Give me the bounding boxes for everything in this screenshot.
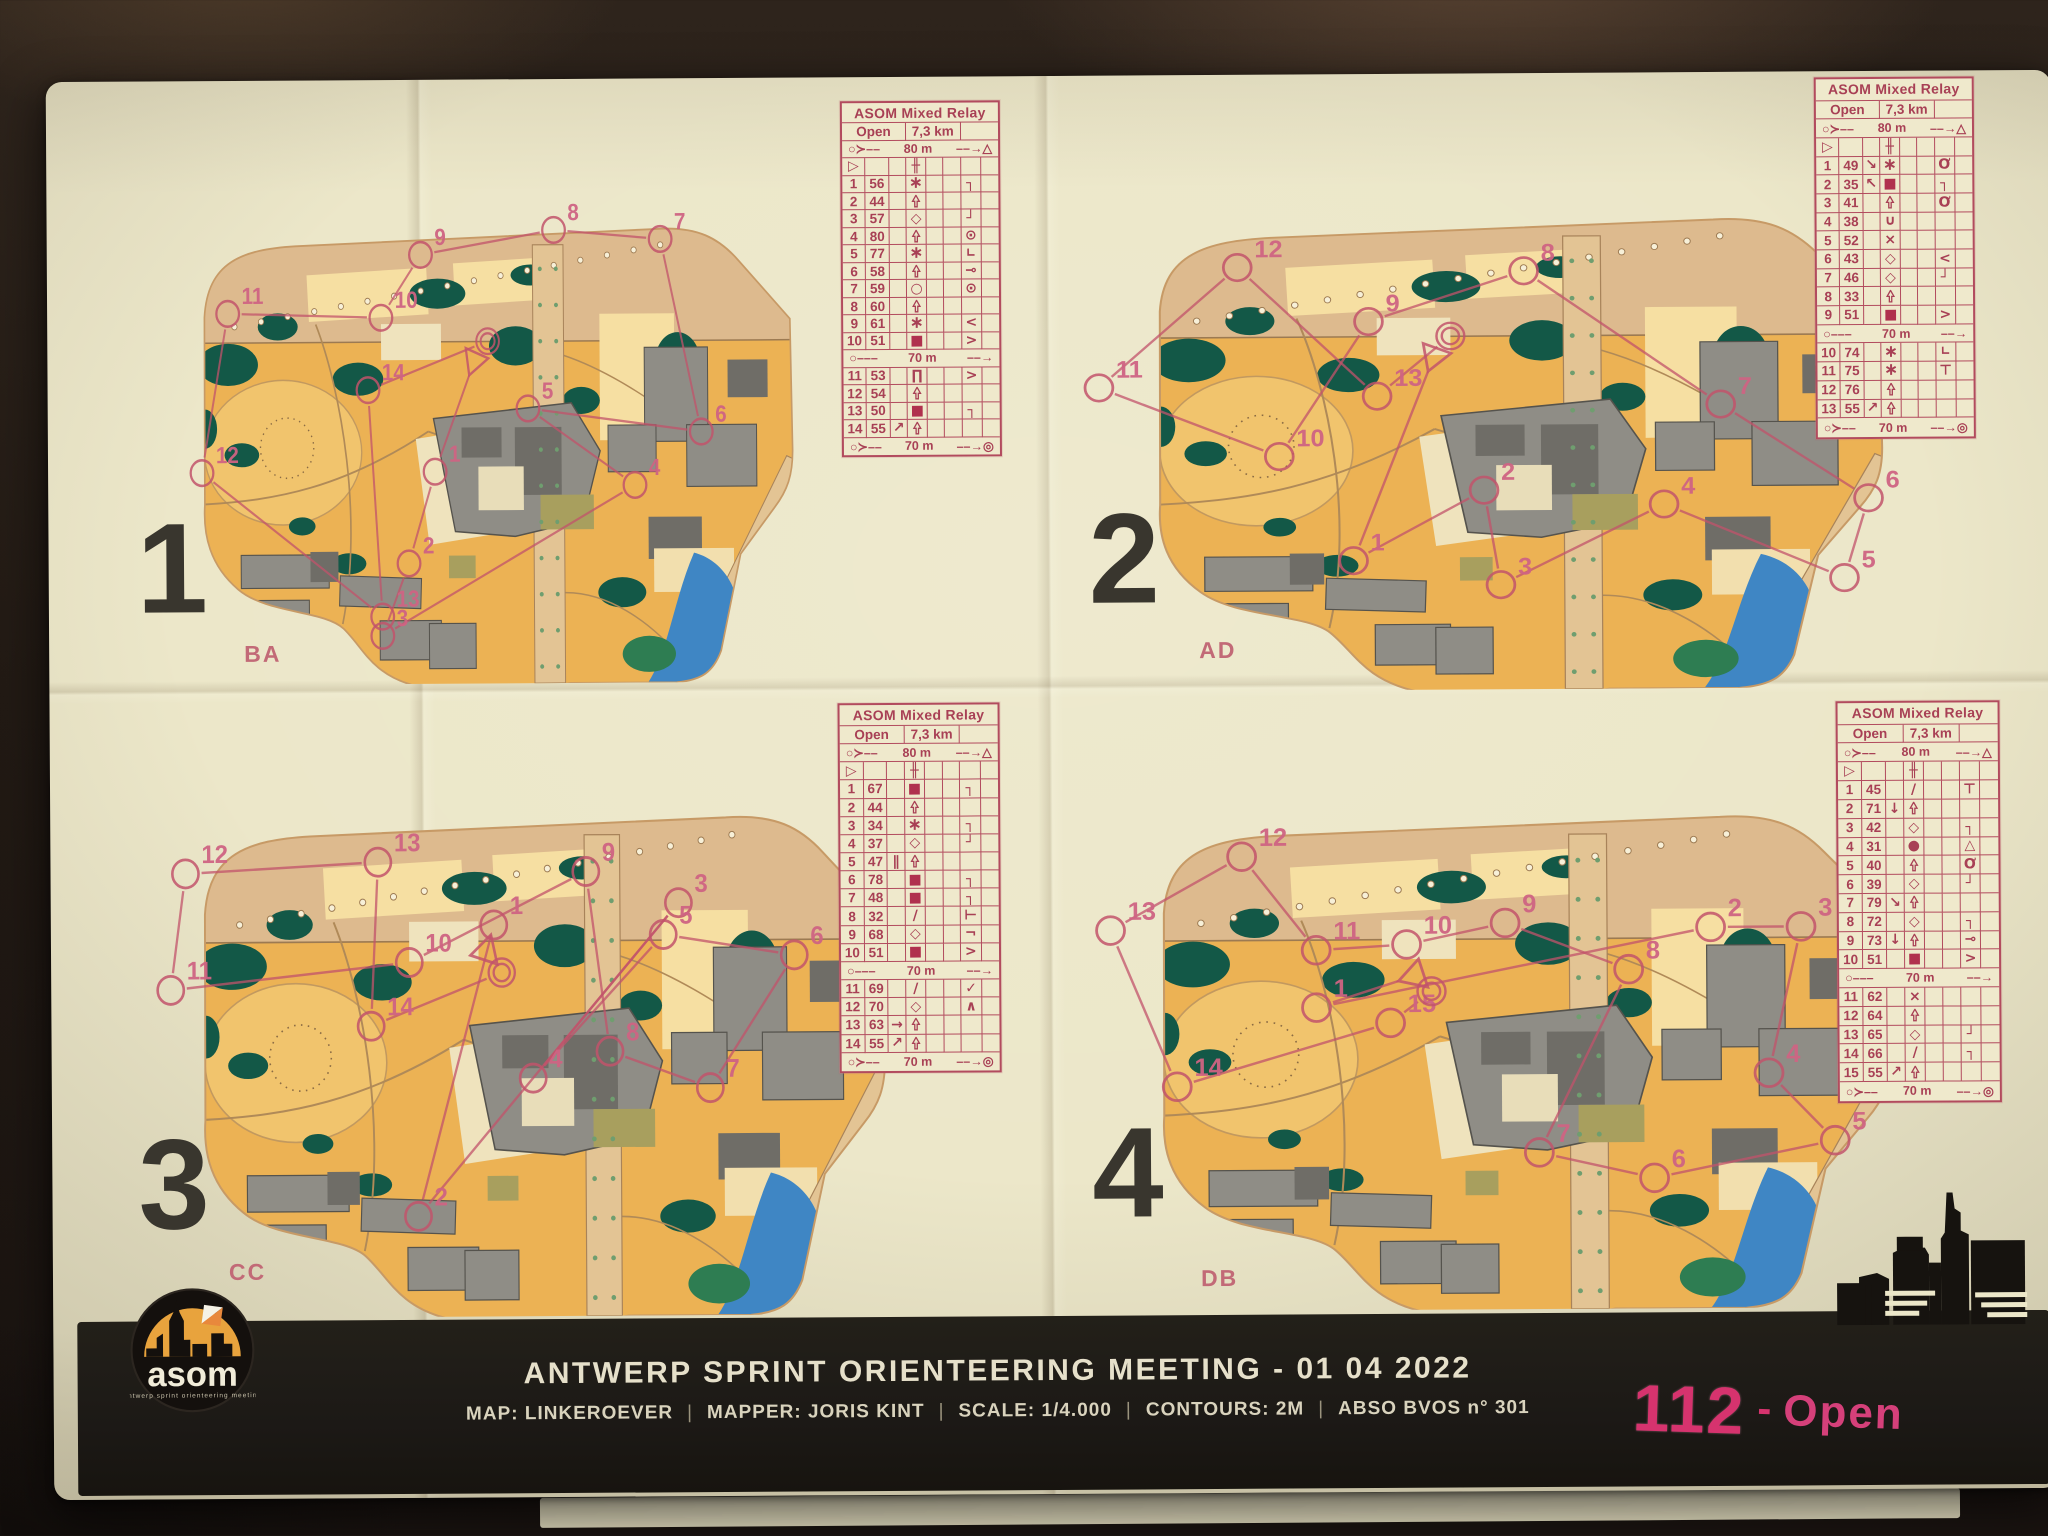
ct-cell <box>1981 912 1999 931</box>
ct-cell <box>1955 156 1972 175</box>
control-row: 973↓⊸ <box>1839 931 1999 951</box>
ct-edge-text: ––→◎ <box>1930 419 1967 434</box>
ct-cell: ⊙ <box>961 280 981 298</box>
symbol-star-icon: ∗ <box>910 315 924 332</box>
control-number: 7 <box>1556 1120 1570 1148</box>
event-meta: MAP: LINKEROEVER|MAPPER: JORIS KINT|SCAL… <box>408 1397 1588 1426</box>
ct-cell <box>907 228 927 246</box>
ct-cell <box>1864 343 1881 362</box>
ct-cell <box>944 1034 961 1052</box>
meta-separator: | <box>1304 1398 1338 1419</box>
ct-edge-text: ○––– <box>849 351 877 365</box>
ct-cell: 44 <box>864 799 888 817</box>
ct-cell <box>1881 287 1901 306</box>
ct-cell: 79 <box>1863 894 1887 913</box>
ct-cell: 1 <box>842 176 865 194</box>
control-row: 244 <box>840 798 998 817</box>
ct-cell: ○≻––70 m––→◎ <box>1840 1081 2000 1101</box>
ct-cell <box>1955 212 1972 231</box>
ct-cell <box>1956 268 1973 287</box>
ct-cell <box>1905 1006 1926 1025</box>
ct-cell: Ơ <box>1960 856 1981 875</box>
ct-cell <box>927 280 944 298</box>
ct-cell <box>927 1034 944 1052</box>
ct-edge-text: ○≻–– <box>846 745 878 760</box>
ct-cell: ASOM Mixed Relay <box>1816 78 1972 100</box>
ct-cell <box>887 762 904 780</box>
ct-cell <box>1956 343 1973 362</box>
ct-cell: 3 <box>1838 819 1862 838</box>
ct-cell: ↗ <box>889 1034 906 1052</box>
ct-cell: 68 <box>865 926 889 944</box>
control-row: 833 <box>1817 287 1973 307</box>
ct-cell <box>1943 950 1961 969</box>
ct-cell <box>1926 1063 1944 1082</box>
control-number: 1 <box>1334 975 1348 1003</box>
ct-cell <box>927 315 944 333</box>
ct-exchange-row: ○–––70 m––→ <box>841 961 999 980</box>
symbol-gate-icon: ╫ <box>912 159 921 173</box>
ct-cell <box>927 210 944 228</box>
ct-finish-row: ○≻––70 m––→◎ <box>842 1052 1000 1071</box>
ct-cell <box>962 419 982 437</box>
ct-cell <box>1926 1006 1944 1025</box>
control-row: 357◇┘ <box>842 210 998 228</box>
ct-cell <box>1981 893 1999 912</box>
ct-cell: 37 <box>864 835 888 853</box>
ct-cell: ∏ <box>907 367 927 385</box>
ct-cell: ∗ <box>1880 156 1900 175</box>
ct-start-distance-row: ○≻––80 m––→△ <box>1816 119 1972 139</box>
ct-cell: ╫ <box>1903 762 1924 781</box>
ct-cell: 44 <box>866 193 889 211</box>
ct-cell: 77 <box>866 245 889 263</box>
symbol-circle-tick-icon: ⊙ <box>965 281 977 295</box>
ct-cell: ∥ <box>888 853 905 871</box>
ct-cell <box>944 943 961 961</box>
ct-cell <box>889 245 906 263</box>
ct-cell: 13 <box>1839 1026 1863 1045</box>
ct-cell: ┐ <box>1960 818 1981 837</box>
ct-cell <box>1942 799 1960 818</box>
ct-cell: 1 <box>1838 781 1862 800</box>
symbol-corner-ne-icon: ┐ <box>966 781 975 795</box>
ct-cell: ┐ <box>960 816 981 834</box>
ct-cell: 55 <box>867 420 890 438</box>
ct-cell: 6 <box>1839 875 1863 894</box>
ct-cell <box>927 1016 944 1034</box>
ct-cell <box>1887 913 1905 932</box>
ct-cell <box>943 889 960 907</box>
ct-cell <box>926 175 943 193</box>
ct-start-row: ▷╫ <box>842 157 998 175</box>
ct-cell <box>944 245 961 263</box>
ct-cell <box>926 925 943 943</box>
control-row: 1074∗∟ <box>1817 343 1973 363</box>
ct-cell: < <box>1935 249 1955 268</box>
ct-cell <box>1919 362 1936 381</box>
ct-mid-text: 80 m <box>1901 745 1930 759</box>
ct-cell: 10 <box>841 944 865 962</box>
ct-cell <box>1901 306 1918 325</box>
meta-separator: | <box>1112 1399 1146 1420</box>
symbol-gate-icon: ╫ <box>910 764 919 778</box>
ct-cell <box>926 834 943 852</box>
ct-cell <box>1981 856 1999 875</box>
control-row: 1455↗ <box>842 1034 1000 1053</box>
symbol-junction-icon: ✓ <box>965 981 977 995</box>
control-number: 9 <box>1385 291 1399 317</box>
ct-cell <box>944 175 961 193</box>
control-row: 1466/┐ <box>1840 1044 2000 1064</box>
ct-cell: ○≻––80 m––→△ <box>842 140 998 158</box>
ct-cell: ◇ <box>906 998 927 1016</box>
control-row: 746◇┘ <box>1817 268 1973 288</box>
control-number: 8 <box>567 199 579 225</box>
control-number: 14 <box>1194 1054 1223 1082</box>
ct-cell <box>1901 212 1918 231</box>
control-row: 1455↗ <box>844 419 1000 437</box>
ct-cell <box>1924 781 1942 800</box>
ct-cell <box>945 385 962 403</box>
ct-cell <box>1901 287 1918 306</box>
control-number: 5 <box>1852 1107 1866 1135</box>
ct-cell <box>1900 156 1917 175</box>
control-number: 13 <box>1394 365 1422 391</box>
ct-cell <box>908 420 928 438</box>
ct-cell: ┘ <box>1960 874 1981 893</box>
control-row: 149↘∗Ơ <box>1816 156 1972 176</box>
ct-start-distance-row: ○≻––80 m––→△ <box>1838 743 1998 763</box>
ct-cell <box>889 980 906 998</box>
control-number: 8 <box>1541 240 1555 266</box>
ct-cell <box>926 889 943 907</box>
ct-cell: ┘ <box>1935 268 1955 287</box>
symbol-slash-icon: / <box>913 981 918 995</box>
bib-and-class: 112-Open <box>1632 1369 1905 1454</box>
ct-cell: ○–––70 m––→ <box>1839 968 1999 988</box>
symbol-square-icon: ■ <box>908 873 921 887</box>
ct-cell: 55 <box>1841 400 1865 419</box>
symbol-corner-ne-icon: ┐ <box>966 890 975 904</box>
ct-cell: → <box>889 1016 906 1034</box>
ct-cell <box>890 315 907 333</box>
symbol-tree-icon <box>912 387 923 400</box>
ct-cell: ↗ <box>1864 399 1881 418</box>
control-number: 14 <box>382 359 406 386</box>
ct-cell: 8 <box>1817 288 1841 307</box>
ct-cell <box>1981 874 1999 893</box>
ct-cell: 49 <box>1840 157 1864 176</box>
ct-cell <box>1955 193 1972 212</box>
ct-cell <box>1902 362 1919 381</box>
symbol-tree-icon <box>1909 934 1920 947</box>
symbol-arrow-nw-icon: ↖ <box>1865 177 1877 191</box>
control-row: 334∗┐ <box>840 816 998 835</box>
ct-cell <box>1956 287 1973 306</box>
ct-edge-text: ––→△ <box>956 744 992 759</box>
ct-cell: 11 <box>843 368 866 386</box>
ct-cell <box>866 158 889 176</box>
symbol-corner-ne-icon: ┐ <box>966 818 975 832</box>
symbol-diamond-icon: ◇ <box>1885 252 1896 266</box>
ct-cell <box>1881 381 1901 400</box>
ct-start-row: ▷╫ <box>840 762 998 781</box>
control-row: 951■> <box>1817 305 1973 325</box>
ct-cell <box>1960 799 1981 818</box>
ct-cell: ⊸ <box>961 262 981 280</box>
ct-cell <box>928 402 945 420</box>
ct-cell: ◇ <box>1904 912 1925 931</box>
symbol-corner-se-icon: ┘ <box>966 211 975 225</box>
ct-cell <box>1904 856 1925 875</box>
ct-cell: 11 <box>1817 362 1841 381</box>
ct-cell <box>889 193 906 211</box>
antwerp-skyline-icon <box>1829 1192 2040 1325</box>
ct-cell: 38 <box>1840 213 1864 232</box>
control-number: 2 <box>1501 459 1515 485</box>
ct-cell <box>1956 249 1973 268</box>
ct-cell: ○–––70 m––→ <box>841 961 999 980</box>
symbol-arrow-se-icon: ↘ <box>1889 896 1901 910</box>
ct-cell <box>928 420 945 438</box>
symbol-bend-e-icon: > <box>965 945 977 959</box>
ct-cell: 13 <box>844 403 867 421</box>
ct-cell <box>981 245 998 263</box>
control-row: 658⊸ <box>843 262 999 280</box>
control-number: 10 <box>425 930 452 958</box>
ct-cell <box>906 1016 927 1034</box>
control-number: 13 <box>1128 898 1157 926</box>
symbol-diamond-icon: ◇ <box>909 836 920 850</box>
asom-club-logo: asom antwerp sprint orienteering meeting <box>129 1287 256 1414</box>
ct-start-distance-row: ○≻––80 m––→△ <box>840 743 998 762</box>
ct-cell: / <box>1905 1044 1926 1063</box>
ct-cell: 6 <box>841 871 865 889</box>
ct-cell <box>1935 231 1955 250</box>
ct-cell: 40 <box>1862 856 1886 875</box>
ct-edge-text: ––→◎ <box>957 438 994 453</box>
ct-cell: 51 <box>867 333 890 351</box>
control-number: 4 <box>1786 1040 1800 1068</box>
ct-cell <box>1942 762 1960 781</box>
control-number: 4 <box>1681 473 1696 499</box>
ct-edge-text: ––→ <box>1941 326 1967 340</box>
ct-cell <box>1864 381 1881 400</box>
ct-edge-text: ––→◎ <box>956 1054 993 1069</box>
ct-cell <box>1956 380 1973 399</box>
ct-cell <box>983 419 1000 437</box>
ct-cell: ┐ <box>960 780 981 798</box>
ct-cell <box>1917 137 1934 156</box>
ct-cell <box>1942 837 1960 856</box>
control-number: 11 <box>187 958 213 986</box>
symbol-corner-ne-icon: ┐ <box>1965 820 1974 834</box>
symbol-arrow-e-icon: → <box>891 1018 903 1032</box>
ct-cell <box>926 158 943 176</box>
ct-cell <box>1961 987 1982 1006</box>
ct-cell: 1 <box>1816 157 1840 176</box>
ct-cell <box>981 227 998 245</box>
control-row: 1264 <box>1839 1006 1999 1026</box>
ct-cell <box>961 1016 982 1034</box>
ct-cell: 41 <box>1840 194 1864 213</box>
ct-cell <box>961 192 981 210</box>
ct-cell: 10 <box>843 333 866 351</box>
ct-cell <box>888 817 905 835</box>
ct-cell: ■ <box>906 944 927 962</box>
symbol-cross-icon: × <box>1884 233 1896 247</box>
ct-cell: ○≻––80 m––→△ <box>840 743 998 762</box>
leg-number-3: 3 <box>138 1121 206 1249</box>
symbol-square-icon: ■ <box>908 782 921 796</box>
ct-cell <box>928 367 945 385</box>
control-row: 678■┐ <box>841 870 999 889</box>
ct-cell <box>1918 156 1935 175</box>
ct-cell: ▷ <box>840 762 864 780</box>
ct-cell: 76 <box>1841 381 1865 400</box>
symbol-tree-icon <box>1884 196 1895 209</box>
ct-cell <box>1919 380 1936 399</box>
control-number: 6 <box>1672 1145 1686 1173</box>
control-number: 2 <box>1728 894 1742 922</box>
ct-cell: ◇ <box>1905 1025 1926 1044</box>
ct-cell <box>943 871 960 889</box>
ct-cell <box>1943 987 1961 1006</box>
ct-cell: ▷ <box>842 158 865 176</box>
ct-cell <box>1882 399 1902 418</box>
control-number: 5 <box>542 377 554 404</box>
ct-title-row: ASOM Mixed Relay <box>840 704 998 726</box>
ct-cell: ✓ <box>961 980 982 998</box>
ct-cell: 9 <box>841 926 865 944</box>
symbol-tree-icon <box>1908 858 1919 871</box>
ct-cell: 4 <box>843 228 866 246</box>
ct-cell <box>945 332 962 350</box>
ct-cell: ○≻––80 m––→△ <box>1838 743 1998 763</box>
ct-cell <box>888 944 905 962</box>
ct-cell <box>943 853 960 871</box>
ct-cell: 32 <box>864 907 888 925</box>
symbol-diamond-icon: ◇ <box>910 1000 921 1014</box>
ct-cell <box>1863 194 1880 213</box>
ct-cell <box>945 420 962 438</box>
symbol-slash-icon: / <box>913 909 918 923</box>
ct-cell <box>1942 781 1960 800</box>
ct-mid-text: 80 m <box>902 745 931 759</box>
symbol-bend-w-icon: < <box>965 316 977 330</box>
ct-cell <box>1955 231 1972 250</box>
ct-cell: ⊙ <box>961 227 981 245</box>
ct-cell <box>1943 1006 1961 1025</box>
ct-cell: 3 <box>1816 194 1840 213</box>
ct-cell <box>925 780 942 798</box>
ct-cell: ∗ <box>906 175 926 193</box>
ct-cell <box>960 725 998 743</box>
control-row: 1555↗ <box>1840 1062 2000 1082</box>
ct-cell: ■ <box>907 332 927 350</box>
ct-edge-text: ––→△ <box>956 141 992 156</box>
ct-mid-text: 70 m <box>905 439 934 453</box>
ct-cell <box>926 871 943 889</box>
ct-cell <box>1904 894 1925 913</box>
control-descriptions-leg-3: ASOM Mixed RelayOpen7,3 km○≻––80 m––→△▷╫… <box>837 702 1001 1073</box>
ct-cell: 13 <box>1818 400 1842 419</box>
control-number: 9 <box>602 839 615 867</box>
symbol-diamond-icon: ◇ <box>1909 914 1920 928</box>
ct-cell <box>981 175 998 193</box>
control-number: 10 <box>1296 426 1324 452</box>
control-row: 832/⊢ <box>841 907 999 926</box>
control-row: 342◇┐ <box>1838 818 1998 838</box>
symbol-star-icon: ∗ <box>908 817 922 834</box>
symbol-tree-icon <box>910 1018 921 1031</box>
ct-cell: 63 <box>865 1016 889 1034</box>
ct-cell: ⊤ <box>1960 780 1981 799</box>
ct-cell <box>981 925 998 943</box>
symbol-corner-ne-icon: ┐ <box>966 176 975 190</box>
ct-cell <box>961 157 981 175</box>
ct-cell: 14 <box>842 1035 866 1053</box>
ct-cell <box>1956 305 1973 324</box>
control-circle <box>1831 564 1859 591</box>
ct-cell: ↘ <box>1887 894 1905 913</box>
ct-cell: 73 <box>1863 931 1887 950</box>
symbol-bend-w-icon: < <box>1939 251 1951 265</box>
ct-cell: 14 <box>844 420 867 438</box>
symbol-tree-icon <box>1886 402 1897 415</box>
control-number: 9 <box>1522 890 1536 918</box>
symbol-arrow-ne-icon: ↗ <box>891 1036 903 1050</box>
symbol-not-icon: ¬ <box>965 927 977 941</box>
ct-cell <box>1918 194 1935 213</box>
control-number: 13 <box>394 829 421 857</box>
control-row: 1153∏> <box>843 367 999 385</box>
ct-cell <box>890 298 907 316</box>
ct-class-row: Open7,3 km <box>1816 100 1972 120</box>
control-number: 6 <box>1886 467 1900 493</box>
symbol-start-icon: ▷ <box>848 159 859 173</box>
ct-cell <box>906 193 926 211</box>
ct-cell: ∧ <box>961 998 982 1016</box>
ct-cell <box>890 402 907 420</box>
symbol-corner-ne-icon: ┐ <box>968 403 977 417</box>
ct-cell <box>1926 1044 1944 1063</box>
ct-cell <box>1925 894 1943 913</box>
ct-cell: 69 <box>865 980 889 998</box>
ct-cell: 62 <box>1863 988 1887 1007</box>
ct-cell: 14 <box>1840 1045 1864 1064</box>
ct-cell <box>1904 800 1925 819</box>
ct-cell <box>960 122 998 140</box>
ct-cell: 10 <box>1839 950 1863 969</box>
ct-cell: 75 <box>1841 362 1865 381</box>
ct-cell: 4 <box>1838 838 1862 857</box>
control-row: 540Ơ <box>1838 856 1998 876</box>
ct-cell: 65 <box>1863 1026 1887 1045</box>
ct-cell: ◇ <box>906 925 927 943</box>
ct-cell <box>1886 856 1904 875</box>
control-circle <box>172 860 198 888</box>
ct-cell <box>1935 287 1955 306</box>
map-code-1: BA <box>244 641 281 668</box>
ct-cell: 35 <box>1840 175 1864 194</box>
symbol-diamond-icon: ◇ <box>1910 1027 1921 1041</box>
logo-wordmark: asom <box>147 1356 238 1395</box>
ct-exchange-row: ○–––70 m––→ <box>1839 968 1999 988</box>
ct-cell: ◇ <box>906 210 926 228</box>
ct-cell <box>943 762 960 780</box>
